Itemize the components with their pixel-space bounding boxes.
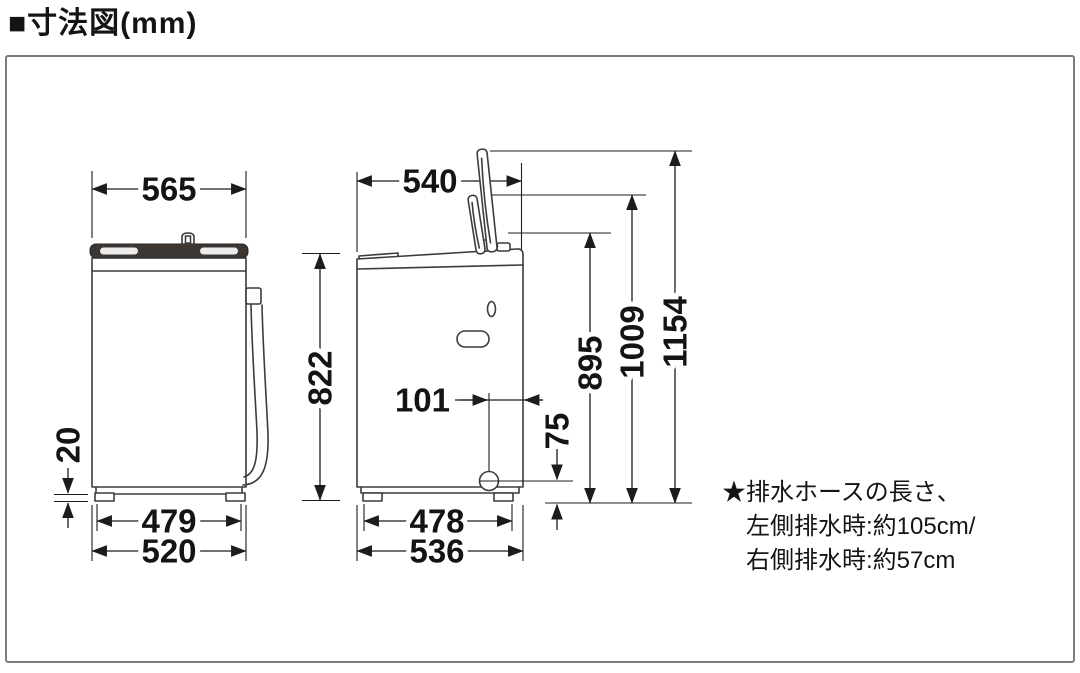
dim-label-101: 101 xyxy=(395,382,450,419)
note-line-3: 右側排水時:約57cm xyxy=(746,547,955,574)
side-foot-front xyxy=(363,493,382,501)
note-line-2: 左側排水時:約105cm/ xyxy=(746,513,976,540)
side-body xyxy=(357,249,523,487)
dim-label-1009: 1009 xyxy=(614,305,651,378)
dim-label-1154: 1154 xyxy=(657,296,694,368)
dim-label-565: 565 xyxy=(141,171,196,208)
front-lid-hinge-right xyxy=(200,248,238,255)
dimension-diagram-page: ■寸法図(mm) 565 20 xyxy=(0,0,1080,673)
front-body xyxy=(92,258,246,487)
front-foot-right xyxy=(226,493,245,501)
note-line-1: ★排水ホースの長さ、 xyxy=(722,479,961,506)
drain-hose-note: ★排水ホースの長さ、 左側排水時:約105cm/ 右側排水時:約57cm xyxy=(722,479,976,574)
side-foot-rear xyxy=(494,493,513,501)
side-small-slot xyxy=(488,302,496,317)
front-lid-hinge-left xyxy=(100,248,138,255)
page-title: ■寸法図(mm) xyxy=(8,7,197,40)
dim-label-75: 75 xyxy=(539,413,576,450)
lid-hinge-block-2 xyxy=(497,243,510,251)
front-foot-left xyxy=(95,493,114,501)
dim-label-20: 20 xyxy=(50,427,87,464)
dim-label-536: 536 xyxy=(409,533,464,570)
dim-label-520: 520 xyxy=(141,533,196,570)
hose-connector xyxy=(246,288,261,304)
dim-label-540: 540 xyxy=(402,163,457,200)
dim-label-822: 822 xyxy=(302,350,339,405)
side-pill-slot xyxy=(457,331,489,347)
dimension-diagram-svg: ■寸法図(mm) 565 20 xyxy=(0,0,1080,673)
dim-label-895: 895 xyxy=(572,335,609,390)
